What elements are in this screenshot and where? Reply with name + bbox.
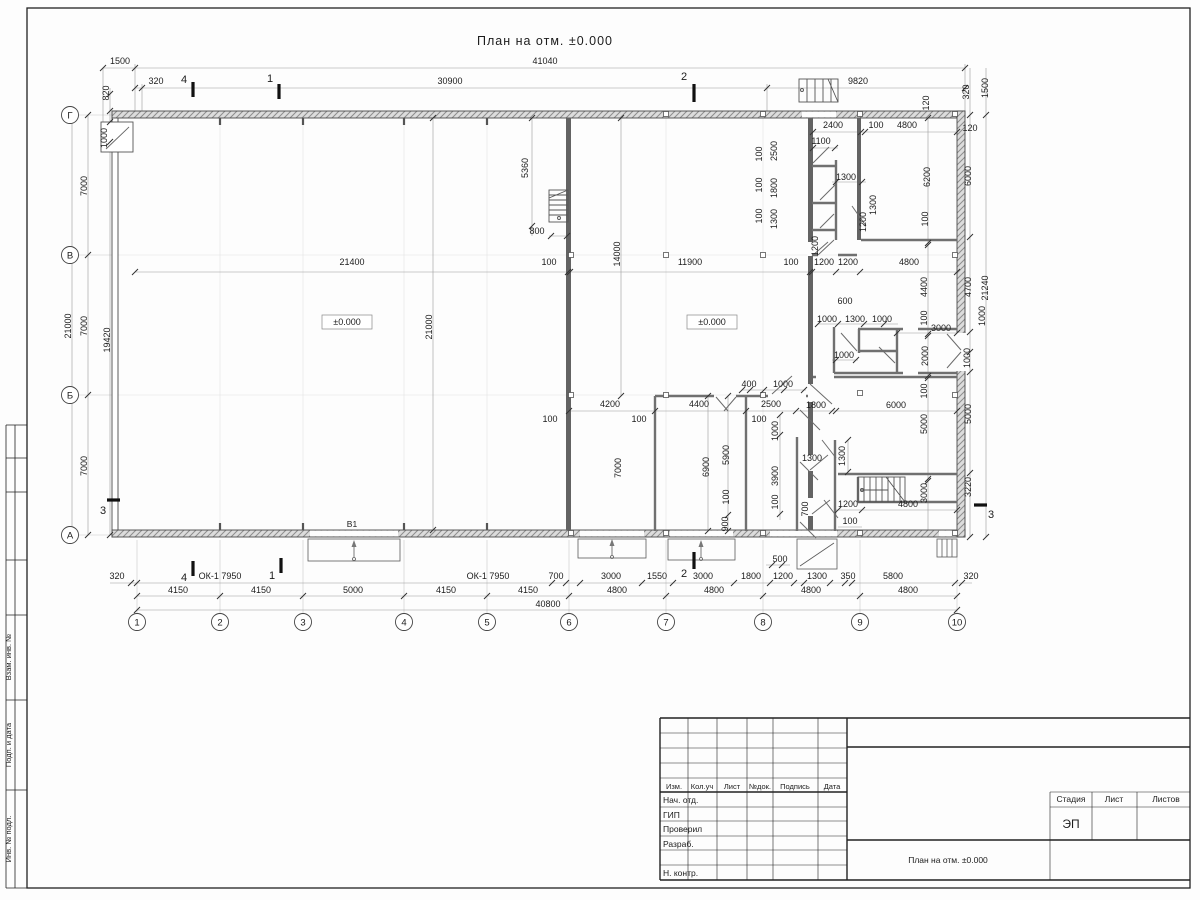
dim-label: 1300 [807,571,827,581]
dim-label: 3000 [931,323,951,333]
dim-label: 14000 [612,241,622,266]
title-block: Изм. Кол.уч Лист №док. Подпись Дата Нач.… [660,718,1190,880]
axis-label: 9 [857,618,862,629]
axis-label: 2 [217,618,222,629]
dim-label: 1500 [110,56,130,66]
gate-label: В1 [347,519,358,529]
dim-label: 1300 [845,314,865,324]
tb-listov-col: Листов [1152,794,1180,804]
dim-label: 100 [770,494,780,509]
tb-row-gip: ГИП [663,810,680,820]
dim-label: 3900 [770,466,780,486]
column-square [761,393,766,398]
dim-label: 400 [741,379,756,389]
dim-label: 4700 [963,277,973,297]
dim-label: 100 [868,120,883,130]
dim-label: 21400 [339,257,364,267]
axis-label: 5 [484,618,489,629]
dim-label: 1550 [647,571,667,581]
column-square [761,112,766,117]
dim-label: 3000 [693,571,713,581]
door-leaves [716,147,961,538]
dim-label: 40800 [535,599,560,609]
tb-row-nachotd: Нач. отд. [663,795,698,805]
dim-label: 320 [963,571,978,581]
dim-label: 21000 [63,313,73,338]
dim-label: 120 [962,123,977,133]
tb-col-data: Дата [824,782,841,791]
dim-label: 1200 [838,257,858,267]
column-square [858,531,863,536]
dim-label: 100 [754,146,764,161]
axis-label: 10 [952,618,963,629]
dim-label: 4800 [704,585,724,595]
column-square [664,112,669,117]
dim-label: 1300 [769,209,779,229]
elevation-label: ±0.000 [698,317,725,327]
section-mark-label: 1 [269,570,275,582]
dim-label: 600 [837,296,852,306]
dim-label: 4200 [600,399,620,409]
stairs-top-ramp [799,79,838,102]
dim-label: 4150 [436,585,456,595]
tb-col-izm: Изм. [666,782,682,791]
dim-label: 5000 [963,404,973,424]
dim-label: 4800 [897,120,917,130]
dim-label: 320 [148,76,163,86]
stairs-mid [549,190,568,222]
tb-col-podpis: Подпись [780,782,810,791]
dim-label: 1800 [806,400,826,410]
tb-row-nkontr: Н. контр. [663,868,698,878]
dim-label: 3000 [601,571,621,581]
dim-label: 900 [720,516,730,531]
dim-label: 6200 [922,167,932,187]
axis-label: 6 [566,618,571,629]
section-mark-label: 2 [681,71,687,83]
dim-label: 9820 [848,76,868,86]
column-square [761,253,766,258]
column-square [664,393,669,398]
tb-col-koluch: Кол.уч [691,782,714,791]
dim-label: 320 [961,84,971,99]
dim-label: 1000 [770,421,780,441]
gates [308,539,957,569]
axis-label: 7 [663,618,668,629]
dim-label: 3000 [919,483,929,503]
column-square [858,112,863,117]
section-mark-label: 3 [988,509,994,521]
axis-label: А [67,531,74,542]
section-mark-label: 1 [267,73,273,85]
dim-label: 30900 [437,76,462,86]
elevation-mark: ±0.000 [687,315,737,329]
plan-title: План на отм. ±0.000 [477,34,613,48]
dim-label: 100 [631,414,646,424]
column-square [664,531,669,536]
dim-label: 1200 [858,212,868,232]
dim-label: 1000 [99,128,109,148]
dim-label: 1300 [836,172,856,182]
wall-top [112,111,965,118]
dim-label: 1300 [802,453,822,463]
dim-label: 21000 [424,314,434,339]
dim-label: 100 [754,177,764,192]
column-square [953,531,958,536]
dim-label: 100 [783,257,798,267]
dim-label: 1200 [810,236,820,256]
dim-label: 320 [109,571,124,581]
dim-label: 2500 [761,399,781,409]
side-stamp-inv: Инв. № подл. [4,816,13,863]
dim-label: 21240 [980,275,990,300]
elevation-label: ±0.000 [333,317,360,327]
dim-label: 7000 [613,458,623,478]
dim-label: 1300 [868,195,878,215]
dim-label: 6000 [963,166,973,186]
dim-label: 19420 [102,327,112,352]
tb-col-list: Лист [724,782,741,791]
dim-label: 5000 [343,585,363,595]
dim-label: 7000 [79,176,89,196]
dim-label: 5360 [520,158,530,178]
dim-label: 1000 [817,314,837,324]
wall-bottom [112,530,965,537]
dim-label: 1300 [837,446,847,466]
dim-label: 4400 [919,277,929,297]
axis-label: Б [67,391,73,402]
window-label: ОК-1 7950 [199,571,242,581]
dim-label: 4400 [689,399,709,409]
dim-label: 100 [541,257,556,267]
dim-label: 1200 [814,257,834,267]
dim-label: 4800 [898,585,918,595]
dim-label: 1100 [811,136,830,146]
dim-label: 2000 [920,346,930,366]
column-square [953,112,958,117]
dim-label: 120 [921,95,931,110]
dim-label: 1800 [741,571,761,581]
dim-label: 1500 [980,78,990,98]
dim-label: 800 [529,226,544,236]
floor-plan-canvas: ±0.000 ±0.000 План на отм. ±0.000 В1 ОК-… [0,0,1200,900]
sheet-frame [27,8,1190,888]
column-square [569,253,574,258]
dim-label: 1200 [773,571,793,581]
dim-label: 100 [919,383,929,398]
wall-left [112,111,118,537]
dim-label: 3220 [963,477,973,497]
section-mark-label: 4 [181,572,187,584]
tb-col-dok: №док. [749,782,771,791]
column-square [761,531,766,536]
dim-label: 41040 [532,56,557,66]
dim-label: 820 [101,85,111,100]
dim-label: 5000 [919,414,929,434]
column-square [858,391,863,396]
elevation-mark: ±0.000 [322,315,372,329]
dim-label: 100 [842,516,857,526]
dim-label: 350 [840,571,855,581]
column-square [953,253,958,258]
dim-label: 1000 [977,306,987,326]
axis-leaders [79,115,957,613]
dim-label: 100 [920,211,930,226]
dim-label: 700 [800,501,810,516]
window-label: ОК-1 7950 [467,571,510,581]
dim-label: 4150 [518,585,538,595]
section-mark-label: 4 [181,74,187,86]
dim-label: 100 [542,414,557,424]
tb-list-col: Лист [1105,794,1124,804]
dim-label: 1000 [834,350,854,360]
tb-stage-value: ЭП [1062,817,1079,831]
dim-label: 1000 [872,314,892,324]
dim-label: 4800 [801,585,821,595]
dim-label: 5800 [883,571,903,581]
axis-label: 4 [401,618,406,629]
dim-label: 100 [751,414,766,424]
dim-label: 4800 [607,585,627,595]
dim-label: 6000 [886,400,906,410]
column-square [953,393,958,398]
dim-label: 1800 [769,178,779,198]
dim-label: 100 [754,208,764,223]
dim-label: 100 [919,310,929,325]
axis-label: 8 [760,618,765,629]
dim-label: 6900 [701,457,711,477]
axis-label: 3 [300,618,305,629]
column-square [569,531,574,536]
dim-label: 1000 [773,379,793,389]
dimension-labels: 4104015003203090098208201000320150012070… [63,56,990,609]
dim-label: 5900 [721,445,731,465]
dim-label: 2400 [823,120,843,130]
tb-row-proveril: Проверил [663,824,702,834]
tb-row-razrab: Разраб. [663,839,694,849]
dim-label: 4800 [898,499,918,509]
axis-label: В [67,251,73,262]
dim-label: 11900 [678,257,702,267]
dim-label: 4150 [168,585,188,595]
dim-label: 4150 [251,585,271,595]
section-mark-label: 3 [100,505,106,517]
dim-label: 4800 [899,257,919,267]
dim-label: 7000 [79,316,89,336]
side-stamp: Взам. инв. № Подп. и дата Инв. № подл. [4,425,27,888]
axis-bubbles: 12345678910ГВБА [62,107,966,631]
dim-label: 2500 [769,141,779,161]
axis-label: 1 [134,618,139,629]
section-mark-label: 2 [681,568,687,580]
column-square [569,393,574,398]
side-stamp-podp: Подп. и дата [4,722,13,767]
tb-doc-title: План на отм. ±0.000 [908,855,988,865]
tb-stage-col: Стадия [1057,794,1086,804]
dimension-lines [72,64,986,610]
dim-label: 7000 [79,456,89,476]
dim-label: 1200 [838,499,858,509]
side-stamp-vzam: Взам. инв. № [4,634,13,680]
column-square [664,253,669,258]
wall-mid [566,118,571,530]
dim-label: 1000 [962,348,972,368]
drawing-sheet: ±0.000 ±0.000 План на отм. ±0.000 В1 ОК-… [0,0,1200,900]
axis-label: Г [67,111,72,122]
dim-label: 700 [548,571,563,581]
dim-label: 100 [721,489,731,504]
dim-label: 500 [772,554,787,564]
